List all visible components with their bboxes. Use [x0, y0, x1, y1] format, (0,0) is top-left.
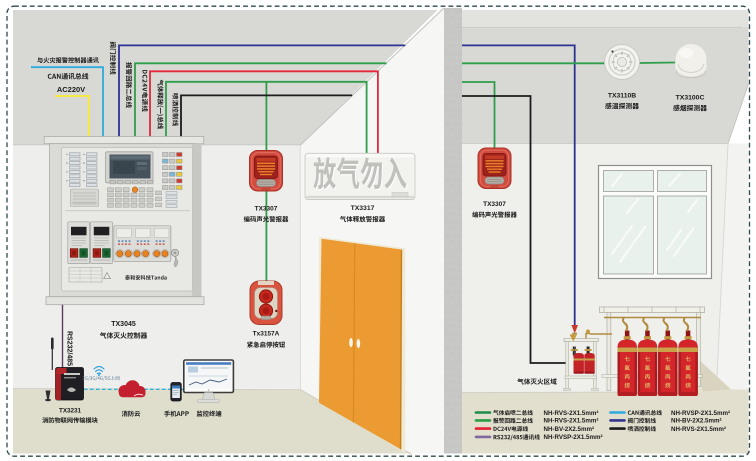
svg-text:NH-BV-2X2.5mm²: NH-BV-2X2.5mm² [544, 426, 595, 433]
svg-text:TX3307: TX3307 [483, 201, 506, 208]
svg-text:NH-RVSP-2X1.5mm²: NH-RVSP-2X1.5mm² [671, 410, 730, 417]
svg-text:NH-RVS-2X1.5mm²: NH-RVS-2X1.5mm² [671, 426, 726, 433]
svg-text:TX3110B: TX3110B [608, 93, 636, 100]
svg-text:TX3100C: TX3100C [676, 95, 705, 102]
svg-text:NH-BV-2X2.5mm²: NH-BV-2X2.5mm² [671, 418, 722, 425]
svg-text:TX3317: TX3317 [351, 205, 375, 212]
svg-text:TX3307: TX3307 [255, 206, 278, 213]
svg-text:NH-RVS-2X1.5mm²: NH-RVS-2X1.5mm² [544, 418, 599, 425]
svg-text:NH-RVSP-2X1.5mm²: NH-RVSP-2X1.5mm² [544, 434, 603, 441]
svg-text:RS232/485: RS232/485 [66, 331, 73, 366]
svg-text:Tx3157A: Tx3157A [253, 331, 280, 338]
svg-text:NH-RVS-2X1.5mm²: NH-RVS-2X1.5mm² [544, 410, 599, 417]
svg-text:AC220V: AC220V [57, 85, 85, 94]
svg-text:TX3231: TX3231 [59, 408, 82, 415]
svg-text:TX3045: TX3045 [111, 321, 136, 328]
